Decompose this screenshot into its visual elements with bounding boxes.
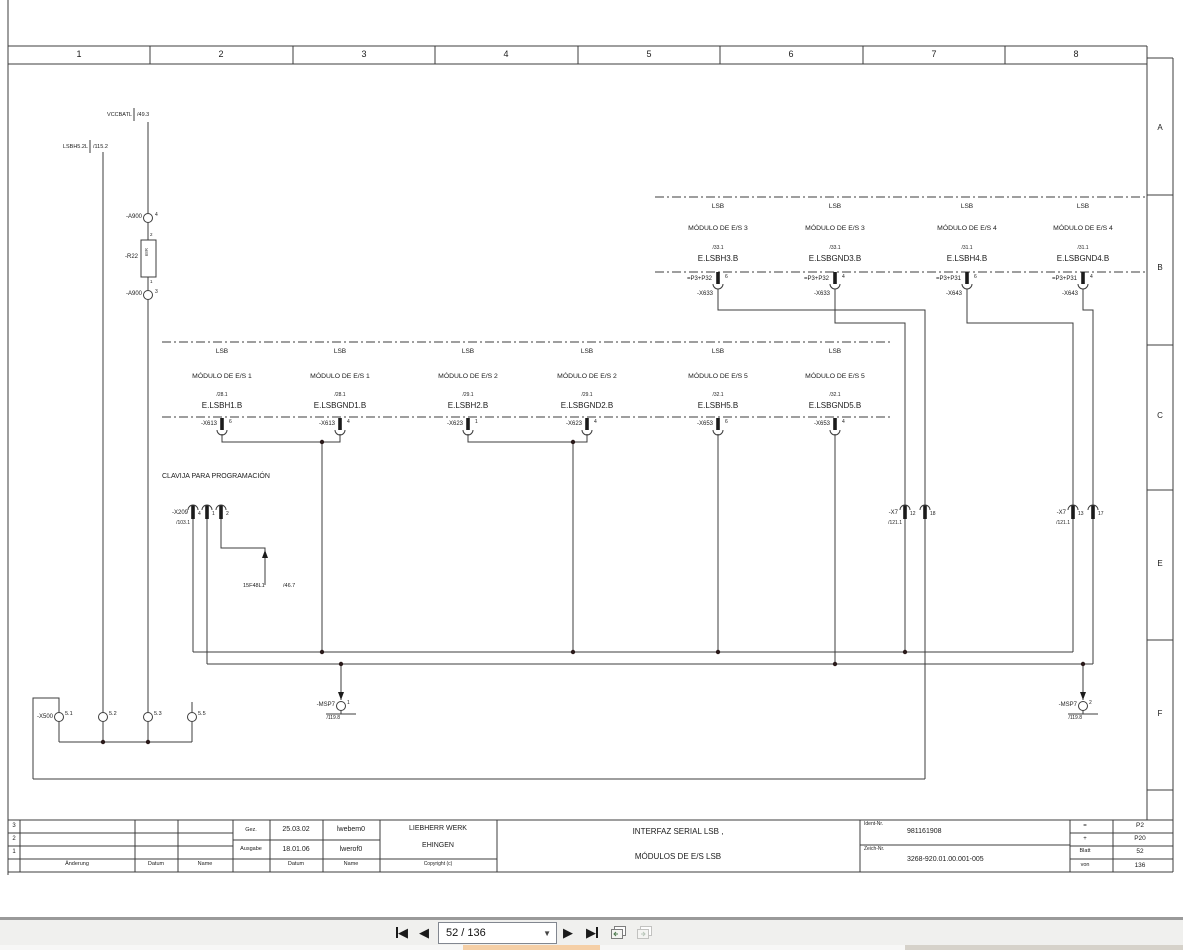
last-page-button[interactable]: ▶ bbox=[582, 920, 602, 945]
datum-label: Datum bbox=[288, 862, 304, 868]
application-window: 1 2 3 4 5 6 7 8 A B C E F VCCBATL /49.3 … bbox=[0, 0, 1183, 950]
module-connector: -X633 bbox=[697, 291, 713, 297]
module-name: MÓDULO DE E/S 2 bbox=[557, 374, 617, 381]
module-bus-label: LSB bbox=[216, 349, 228, 356]
module-connector: -X623 bbox=[447, 421, 463, 427]
module-signal: E.LSBGND4.B bbox=[1057, 255, 1109, 263]
page-number-value: 52 / 136 bbox=[439, 927, 543, 939]
module-signal: E.LSBGND1.B bbox=[314, 402, 366, 410]
module-bus-label: LSB bbox=[712, 204, 724, 211]
previous-view-button[interactable] bbox=[611, 926, 626, 939]
module-pin: 4 bbox=[347, 420, 350, 425]
module-signal: E.LSBH2.B bbox=[448, 402, 488, 410]
border-row-b: B bbox=[1157, 264, 1162, 272]
module-sheet-ref: /29.1 bbox=[462, 393, 473, 398]
x7-left-label: -X7 bbox=[889, 510, 898, 516]
x209-pin-2: 2 bbox=[226, 512, 229, 517]
ident-value: 981161908 bbox=[907, 828, 942, 835]
module-name: MÓDULO DE E/S 3 bbox=[688, 226, 748, 233]
msp7-right-pin: 2 bbox=[1089, 701, 1092, 706]
r22-pin-bottom: 1 bbox=[150, 280, 153, 285]
a900-top-pin: 4 bbox=[155, 213, 158, 218]
module-bus-label: LSB bbox=[581, 349, 593, 356]
next-page-icon: ▶ bbox=[563, 926, 573, 939]
taskbar-item[interactable] bbox=[905, 945, 1183, 950]
ausgabe-name: lwerof0 bbox=[340, 846, 363, 853]
plus-value: P20 bbox=[1134, 836, 1146, 843]
module-pin: 4 bbox=[594, 420, 597, 425]
gez-label: Gez. bbox=[245, 828, 257, 834]
module-bus-label: LSB bbox=[334, 349, 346, 356]
r22-label: -R22 bbox=[125, 254, 138, 260]
module-connector: -X613 bbox=[201, 421, 217, 427]
module-name: MÓDULO DE E/S 1 bbox=[310, 374, 370, 381]
x500-pin-55: 5.5 bbox=[198, 712, 206, 718]
border-row-e: E bbox=[1157, 560, 1162, 568]
chevron-down-icon: ▼ bbox=[543, 929, 556, 938]
name-label: Name bbox=[344, 862, 359, 868]
x500-pin-51: 5.1 bbox=[65, 712, 73, 718]
gez-name: lwebem0 bbox=[337, 826, 365, 833]
col-datum-label: Datum bbox=[148, 862, 164, 868]
first-page-icon: ◀ bbox=[398, 926, 408, 939]
previous-page-button[interactable]: ◀ bbox=[416, 920, 432, 945]
module-name: MÓDULO DE E/S 1 bbox=[192, 374, 252, 381]
module-sheet-ref: /31.1 bbox=[961, 246, 972, 251]
msp7-left-ref: /119.8 bbox=[326, 716, 340, 721]
module-name: MÓDULO DE E/S 5 bbox=[688, 374, 748, 381]
msp7-left-label: -MSP7 bbox=[317, 702, 335, 708]
prog-ref-name: 15F48L1 bbox=[243, 584, 265, 590]
module-sheet-ref: /33.1 bbox=[712, 246, 723, 251]
ident-label: Ident-Nr. bbox=[864, 822, 883, 827]
module-signal: E.LSBH4.B bbox=[947, 255, 987, 263]
plus-label: + bbox=[1083, 836, 1087, 842]
x500-pin-52: 5.2 bbox=[109, 712, 117, 718]
x7-right-label: -X7 bbox=[1057, 510, 1066, 516]
module-name: MÓDULO DE E/S 2 bbox=[438, 374, 498, 381]
msp7-right-label: -MSP7 bbox=[1059, 702, 1077, 708]
module-sheet-ref: /32.1 bbox=[712, 393, 723, 398]
copyright-label: Copyright (c) bbox=[424, 862, 453, 867]
x209-ref: /103.1 bbox=[176, 521, 190, 526]
module-sheet-ref: /32.1 bbox=[829, 393, 840, 398]
msp7-right-ref: /119.8 bbox=[1068, 716, 1082, 721]
taskbar-item-highlight[interactable] bbox=[463, 945, 600, 950]
border-col-5: 5 bbox=[646, 50, 651, 59]
module-bus-label: LSB bbox=[829, 349, 841, 356]
x500-label: -X500 bbox=[37, 714, 53, 720]
ausgabe-label: Ausgabe bbox=[240, 847, 262, 853]
signal-lsbh52l-label: LSBH5.2L bbox=[63, 145, 88, 151]
r22-pin-top: 2 bbox=[150, 233, 153, 238]
module-name: MÓDULO DE E/S 4 bbox=[1053, 226, 1113, 233]
module-sheet-ref: /28.1 bbox=[334, 393, 345, 398]
ausgabe-date: 18.01.06 bbox=[282, 846, 309, 853]
border-col-2: 2 bbox=[218, 50, 223, 59]
border-row-c: C bbox=[1157, 412, 1163, 420]
rev-row-3: 3 bbox=[12, 823, 15, 829]
module-connector: -X633 bbox=[814, 291, 830, 297]
module-location: =P3+P31 bbox=[936, 276, 961, 282]
module-signal: E.LSBH3.B bbox=[698, 255, 738, 263]
last-page-icon: ▶ bbox=[586, 926, 596, 939]
a900-bottom-pin: 3 bbox=[155, 290, 158, 295]
module-name: MÓDULO DE E/S 5 bbox=[805, 374, 865, 381]
module-connector: -X643 bbox=[946, 291, 962, 297]
module-signal: E.LSBH1.B bbox=[202, 402, 242, 410]
a900-bottom-label: -A900 bbox=[126, 291, 142, 297]
rev-row-2: 2 bbox=[12, 836, 15, 842]
drawing-title-line2: MÓDULOS DE E/S LSB bbox=[635, 853, 721, 861]
wiring-diagram bbox=[0, 0, 1183, 917]
module-pin: 6 bbox=[725, 275, 728, 280]
company-line1: LIEBHERR WERK bbox=[409, 825, 467, 832]
module-sheet-ref: /33.1 bbox=[829, 246, 840, 251]
x209-label: -X209 bbox=[172, 510, 188, 516]
x7-right-ref: /121.1 bbox=[1056, 521, 1070, 526]
module-name: MÓDULO DE E/S 3 bbox=[805, 226, 865, 233]
viewer-toolbar: ◀ ◀ 52 / 136 ▼ ▶ ▶ bbox=[0, 920, 1183, 946]
module-pin: 6 bbox=[229, 420, 232, 425]
module-sheet-ref: /31.1 bbox=[1077, 246, 1088, 251]
border-row-f: F bbox=[1158, 710, 1163, 718]
x7-right-pin-17: 17 bbox=[1098, 512, 1104, 517]
company-line2: EHINGEN bbox=[422, 842, 454, 849]
module-connector: -X653 bbox=[697, 421, 713, 427]
zeich-label: Zeich-Nr. bbox=[864, 847, 884, 852]
module-pin: 6 bbox=[974, 275, 977, 280]
gez-date: 25.03.02 bbox=[282, 826, 309, 833]
border-col-6: 6 bbox=[788, 50, 793, 59]
module-name: MÓDULO DE E/S 4 bbox=[937, 226, 997, 233]
module-bus-label: LSB bbox=[961, 204, 973, 211]
module-connector: -X613 bbox=[319, 421, 335, 427]
blatt-label: Blatt bbox=[1079, 849, 1090, 855]
next-view-button[interactable] bbox=[637, 926, 652, 939]
module-pin: 4 bbox=[1090, 275, 1093, 280]
next-page-button[interactable]: ▶ bbox=[560, 920, 576, 945]
x7-left-ref: /121.1 bbox=[888, 521, 902, 526]
a900-top-label: -A900 bbox=[126, 214, 142, 220]
module-pin: 1 bbox=[475, 420, 478, 425]
zeich-value: 3268-920.01.00.001-005 bbox=[907, 856, 984, 863]
module-location: =P3+P31 bbox=[1052, 276, 1077, 282]
prog-ref-sheet: /46.7 bbox=[283, 584, 295, 590]
module-connector: -X643 bbox=[1062, 291, 1078, 297]
border-col-3: 3 bbox=[361, 50, 366, 59]
border-col-4: 4 bbox=[503, 50, 508, 59]
border-col-7: 7 bbox=[931, 50, 936, 59]
module-connector: -X623 bbox=[566, 421, 582, 427]
signal-vccbatl-ref: /49.3 bbox=[137, 113, 149, 119]
rev-row-1: 1 bbox=[12, 849, 15, 855]
module-bus-label: LSB bbox=[712, 349, 724, 356]
border-col-1: 1 bbox=[76, 50, 81, 59]
module-signal: E.LSBGND5.B bbox=[809, 402, 861, 410]
module-signal: E.LSBGND3.B bbox=[809, 255, 861, 263]
drawing-title-line1: INTERFAZ SERIAL LSB , bbox=[633, 828, 724, 836]
module-pin: 4 bbox=[842, 275, 845, 280]
module-bus-label: LSB bbox=[829, 204, 841, 211]
x500-pin-53: 5.3 bbox=[154, 712, 162, 718]
msp7-left-pin: 1 bbox=[347, 701, 350, 706]
module-signal: E.LSBGND2.B bbox=[561, 402, 613, 410]
module-signal: E.LSBH5.B bbox=[698, 402, 738, 410]
module-bus-label: LSB bbox=[1077, 204, 1089, 211]
page-number-combobox[interactable]: 52 / 136 ▼ bbox=[438, 922, 557, 944]
x7-left-pin-18: 18 bbox=[930, 512, 936, 517]
x7-left-pin-12: 12 bbox=[910, 512, 916, 517]
schematic-page: 1 2 3 4 5 6 7 8 A B C E F VCCBATL /49.3 … bbox=[0, 0, 1183, 917]
first-page-button[interactable]: ◀ bbox=[392, 920, 412, 945]
border-row-a: A bbox=[1157, 124, 1162, 132]
module-pin: 6 bbox=[725, 420, 728, 425]
module-sheet-ref: /28.1 bbox=[216, 393, 227, 398]
r22-value: 68R bbox=[145, 248, 150, 256]
von-value: 136 bbox=[1135, 863, 1146, 870]
signal-vccbatl-label: VCCBATL bbox=[107, 113, 132, 119]
von-label: von bbox=[1081, 863, 1090, 869]
x7-right-pin-13: 13 bbox=[1078, 512, 1084, 517]
eq-value: P2 bbox=[1136, 823, 1144, 830]
module-sheet-ref: /29.1 bbox=[581, 393, 592, 398]
module-location: =P3+P32 bbox=[804, 276, 829, 282]
col-name-label: Name bbox=[198, 862, 213, 868]
last-page-bar-icon bbox=[596, 927, 598, 938]
previous-page-icon: ◀ bbox=[419, 926, 429, 939]
col-aenderung-label: Änderung bbox=[65, 862, 89, 868]
clavija-title: CLAVIJA PARA PROGRAMACIÓN bbox=[162, 473, 270, 480]
x209-pin-4: 4 bbox=[198, 512, 201, 517]
taskbar-edge bbox=[0, 945, 1183, 950]
blatt-value: 52 bbox=[1136, 849, 1143, 856]
module-bus-label: LSB bbox=[462, 349, 474, 356]
module-pin: 4 bbox=[842, 420, 845, 425]
signal-lsbh52l-ref: /115.2 bbox=[93, 145, 108, 151]
module-connector: -X653 bbox=[814, 421, 830, 427]
border-col-8: 8 bbox=[1073, 50, 1078, 59]
eq-label: = bbox=[1083, 823, 1087, 829]
x209-pin-1: 1 bbox=[212, 512, 215, 517]
module-location: =P3+P32 bbox=[687, 276, 712, 282]
